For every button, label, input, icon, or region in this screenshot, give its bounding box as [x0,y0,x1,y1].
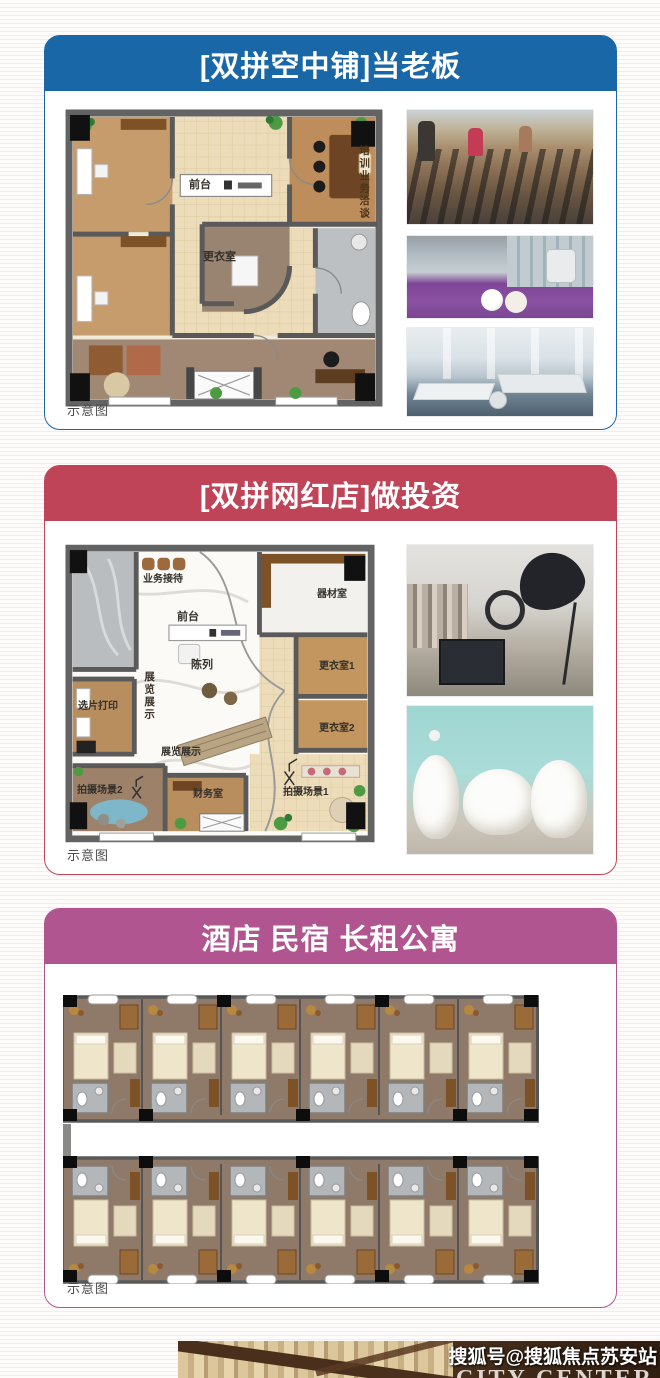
monitor-screen [439,639,505,685]
label-front-desk: 前台 [189,179,211,192]
runner-figure-red [468,128,483,156]
card1-title: [双拼空中铺]当老板 [200,43,461,85]
wedding-dress [413,755,459,839]
card1-header: [双拼空中铺]当老板 [45,36,616,91]
photo-open-plan-office [406,327,594,417]
label-shoot-scene-1: 拍摄场景1 [283,787,329,799]
office-windows [407,328,593,379]
bottom-photo-interior: CITY CENTER 搜狐号@搜狐焦点苏安站 [178,1341,660,1378]
card1-caption: 示意图 [67,400,109,419]
floorplan-office-suite: 前台 更衣室 培训业务洽谈 [65,109,383,407]
photo-wedding-dresses [406,705,594,855]
card-sky-shop: [双拼空中铺]当老板 [44,35,617,430]
runner-figure-dark [418,121,435,161]
label-photo-print: 选片打印 [78,701,118,713]
card2-header: [双拼网红店]做投资 [45,466,616,521]
wedding-dress [531,760,587,838]
card-influencer-shop: [双拼网红店]做投资 [44,465,617,875]
card-hotel-apartment: 酒店 民宿 长租公寓 [44,908,617,1308]
card3-title: 酒店 民宿 长租公寓 [201,916,459,958]
hotel-strip-bottom-svg [63,1156,539,1284]
hotel-floorplan-strip-top [63,994,539,1124]
rolled-towels [481,289,503,311]
card3-header: 酒店 民宿 长租公寓 [45,909,616,964]
card2-body: 业务接待 前台 器材室 陈列 展览展示 选片打印 更衣室1 更衣室2 展览展示 … [45,521,616,874]
card2-title: [双拼网红店]做投资 [200,473,461,515]
label-changing-room: 更衣室 [203,251,236,264]
corridor-connector [63,1124,71,1156]
card3-body: 示意图 [45,964,616,1307]
page: { "page": { "watermark": "搜狐号@搜狐焦点苏安站" }… [0,0,660,1378]
spa-equipment [546,249,576,283]
hotel-floorplan-strip-bottom [63,1156,539,1284]
card1-body: 前台 更衣室 培训业务洽谈 示意图 [45,91,616,429]
label-shoot-scene-2: 拍摄场景2 [77,785,123,797]
label-training-room: 培训业务洽谈 [358,145,370,220]
light-stand [562,603,577,686]
label-exhibition: 展览展示 [161,747,201,759]
card2-caption: 示意图 [67,845,109,864]
card1-photos [406,109,594,417]
label-changing-room-2: 更衣室2 [319,723,355,735]
treadmill-rows [407,149,593,224]
label-display: 陈列 [191,659,213,672]
label-finance-office: 财务室 [193,789,223,801]
wedding-dress [463,769,535,835]
label-front-desk-2: 前台 [177,611,199,624]
label-exhibition-vertical: 展览展示 [143,671,155,721]
runner-figure-tan [519,126,532,152]
clothes-rack [407,584,468,647]
label-business-reception: 业务接待 [143,574,183,586]
hotel-strip-top-svg [63,994,539,1124]
office-desk-right [497,374,586,393]
mannequin-head [429,730,440,741]
photo-gym-treadmills [406,109,594,225]
photo-spa-massage-room [406,235,594,319]
floorplan-studio-shop: 业务接待 前台 器材室 陈列 展览展示 选片打印 更衣室1 更衣室2 展览展示 … [65,541,375,846]
label-changing-room-1: 更衣室1 [319,661,355,673]
label-equipment-room: 器材室 [317,589,347,601]
photo-studio [406,544,594,697]
office-chair [489,391,507,409]
office-desk-left [413,383,496,400]
ring-light [485,590,525,630]
card2-photos [406,544,594,855]
sohu-watermark: 搜狐号@搜狐焦点苏安站 [448,1342,657,1369]
card3-caption: 示意图 [67,1278,109,1297]
